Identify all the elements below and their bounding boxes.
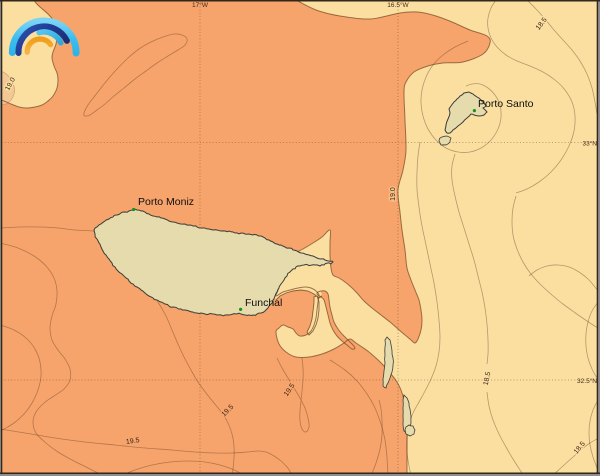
svg-text:Porto Santo: Porto Santo [478, 98, 534, 110]
svg-text:33°N: 33°N [582, 140, 597, 148]
svg-text:16.5°W: 16.5°W [387, 1, 409, 9]
svg-text:17°W: 17°W [192, 1, 209, 9]
svg-text:19.0: 19.0 [390, 187, 397, 201]
svg-text:Funchal: Funchal [245, 297, 282, 309]
svg-text:32.5°N: 32.5°N [577, 377, 597, 385]
svg-text:Porto Moniz: Porto Moniz [138, 196, 194, 208]
